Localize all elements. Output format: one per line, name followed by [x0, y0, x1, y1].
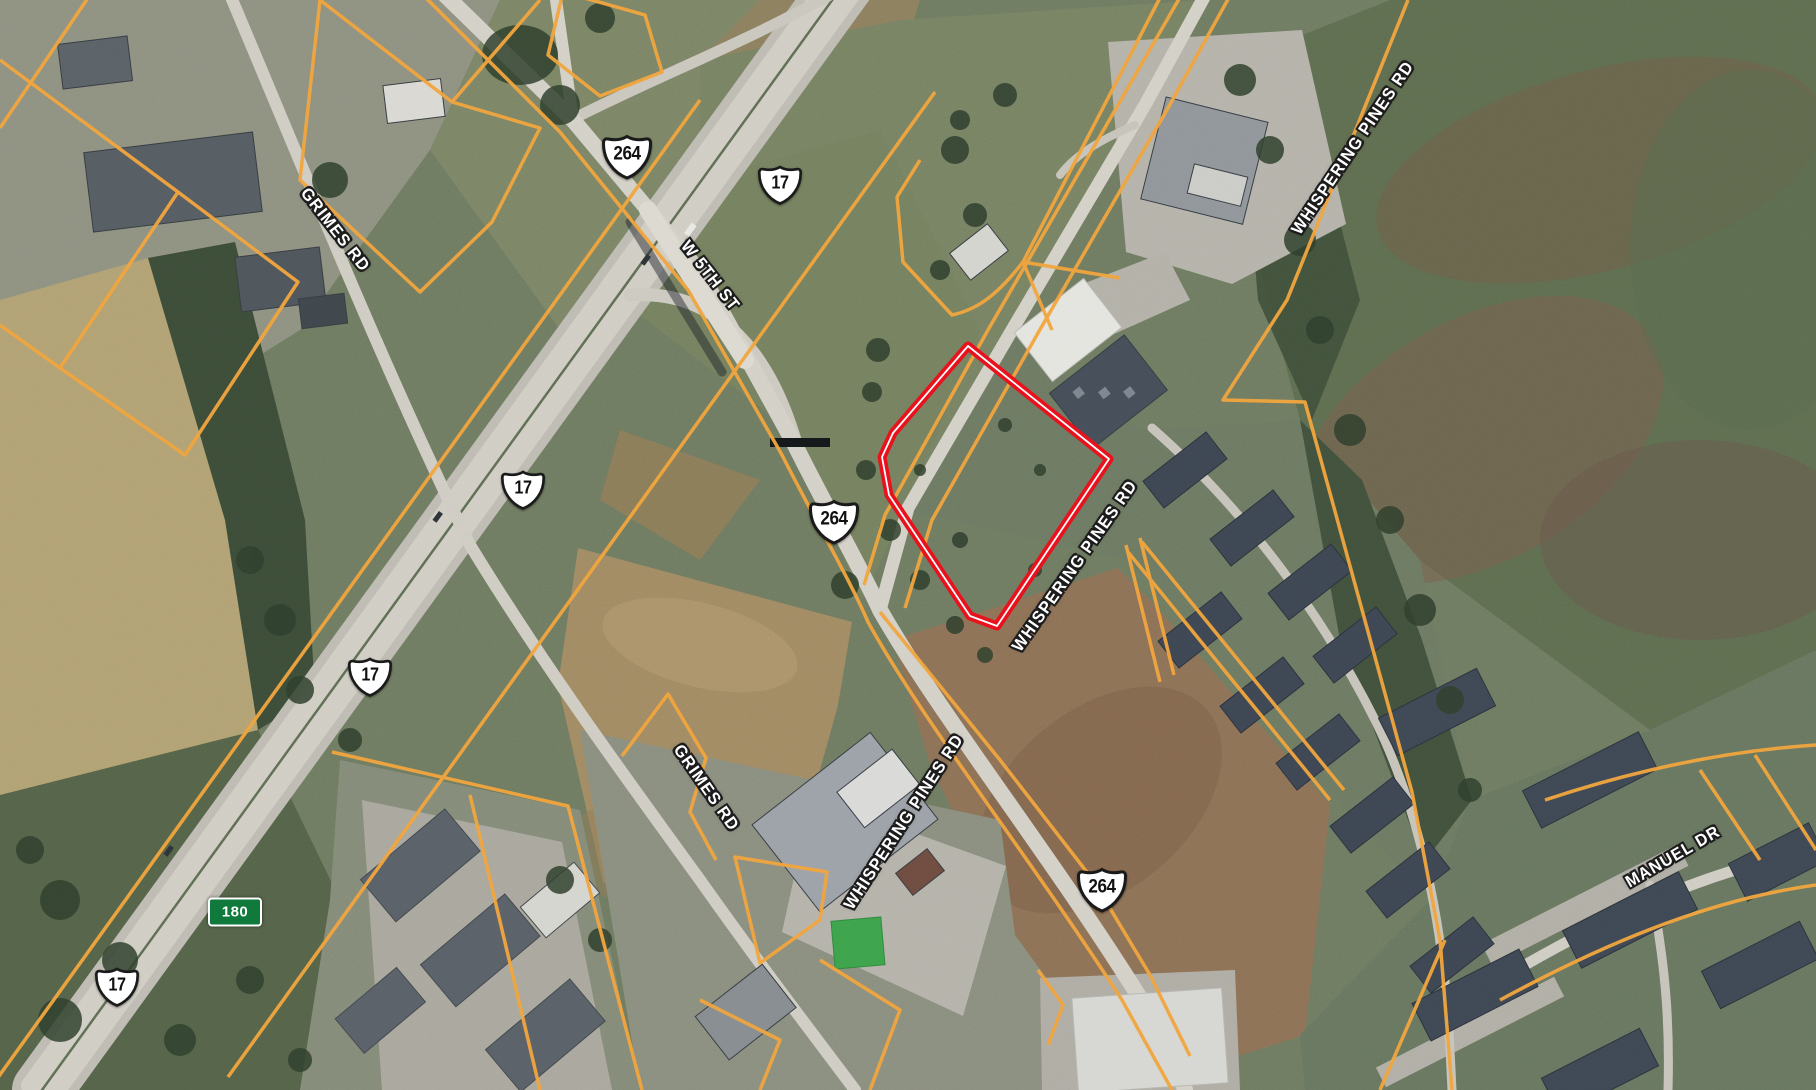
grain-texture: [0, 0, 1816, 1090]
satellite-imagery-canvas: [0, 0, 1816, 1090]
satellite-map-viewport[interactable]: GRIMES RD W 5TH ST WHISPERING PINES RD W…: [0, 0, 1816, 1090]
